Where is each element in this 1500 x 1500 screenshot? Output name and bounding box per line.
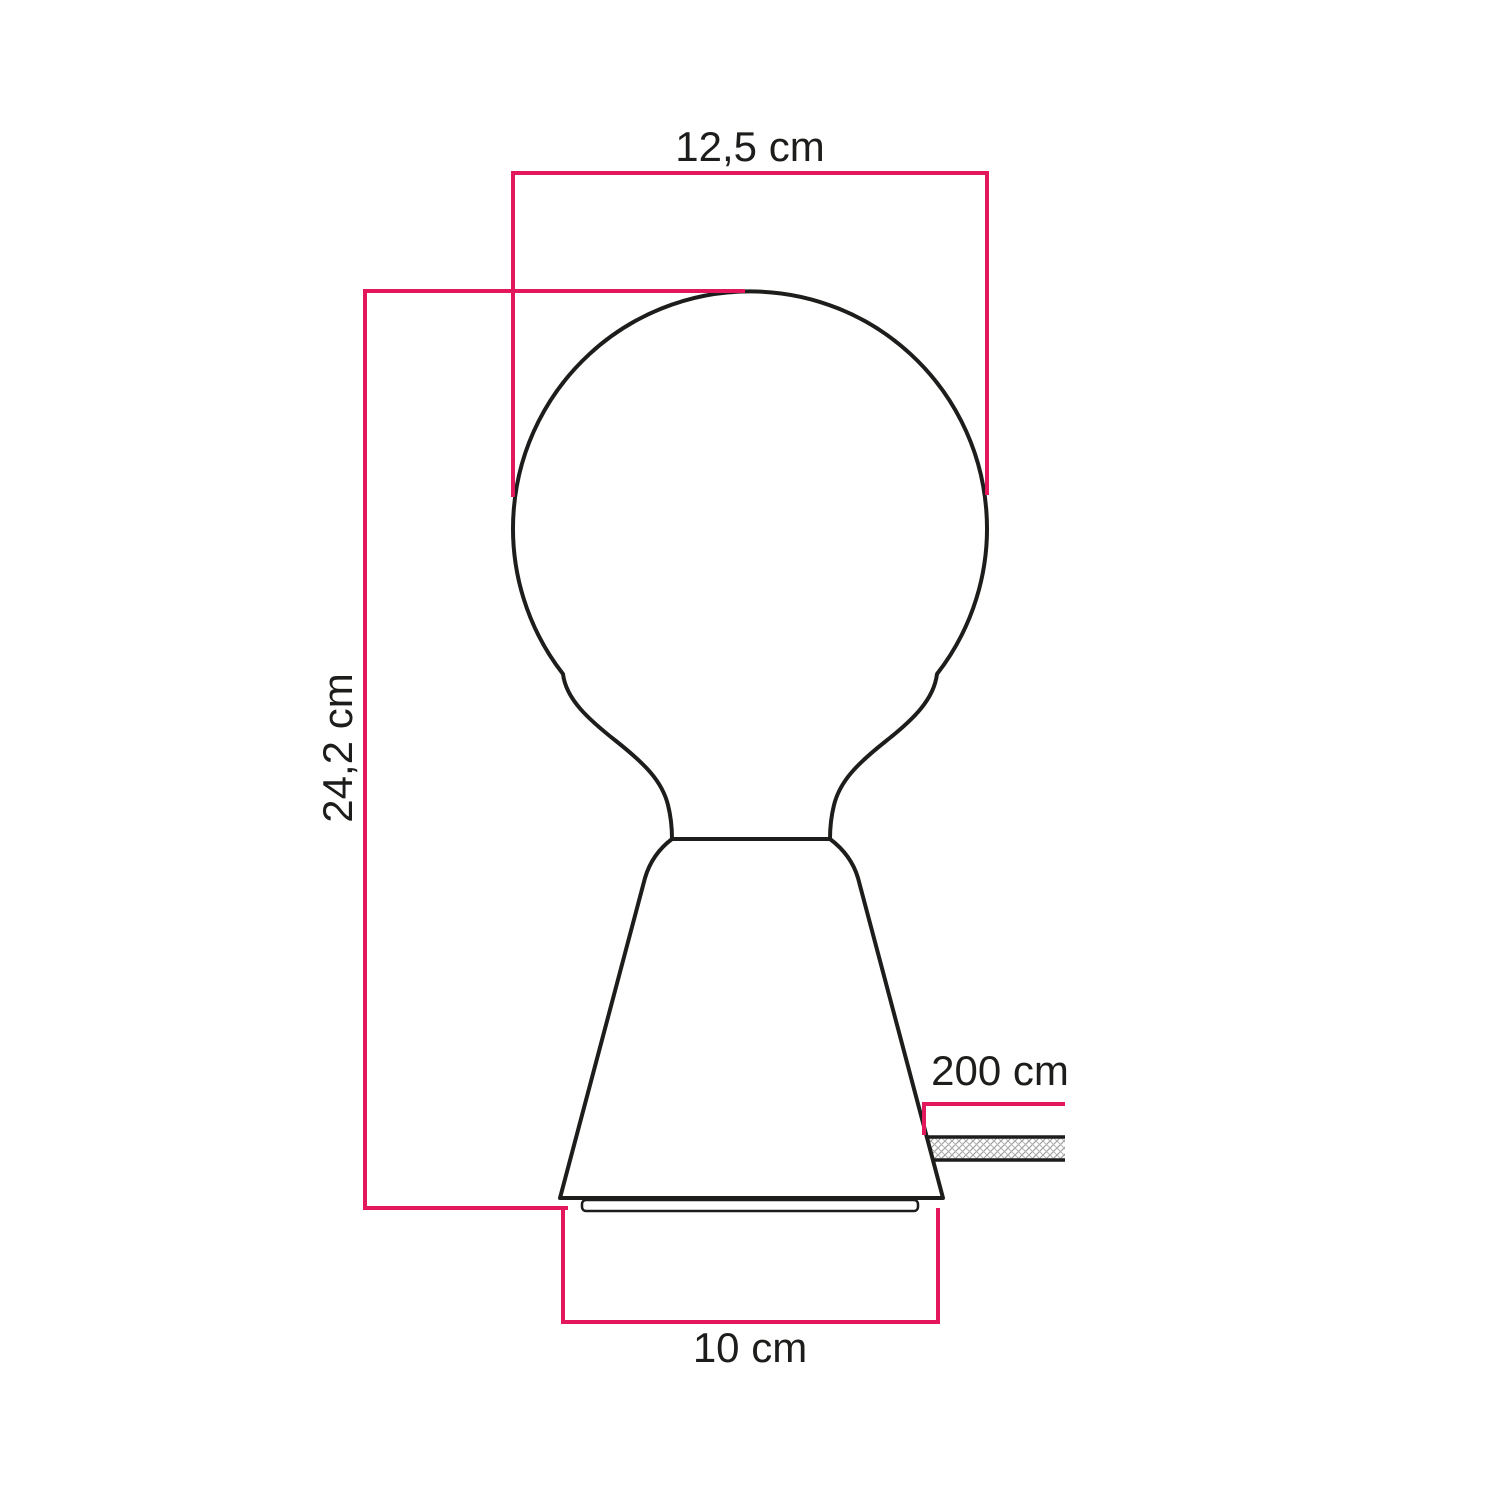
bulb-diameter-label: 12,5 cm: [675, 123, 824, 170]
cable-length-label: 200 cm: [931, 1047, 1069, 1094]
lamp-cone-body: [560, 839, 943, 1198]
dimension-diagram: 12,5 cm 24,2 cm 200 cm 10 cm: [0, 0, 1500, 1500]
lamp-dimension-drawing: 12,5 cm 24,2 cm 200 cm 10 cm: [0, 0, 1500, 1500]
dimension-line-cable-length: [924, 1104, 1065, 1135]
lamp-base-plate: [582, 1200, 918, 1211]
globe-bulb-outline: [513, 291, 987, 839]
total-height-label: 24,2 cm: [314, 673, 361, 822]
base-diameter-label: 10 cm: [693, 1324, 807, 1371]
dimension-line-base-diameter: [563, 1208, 938, 1322]
